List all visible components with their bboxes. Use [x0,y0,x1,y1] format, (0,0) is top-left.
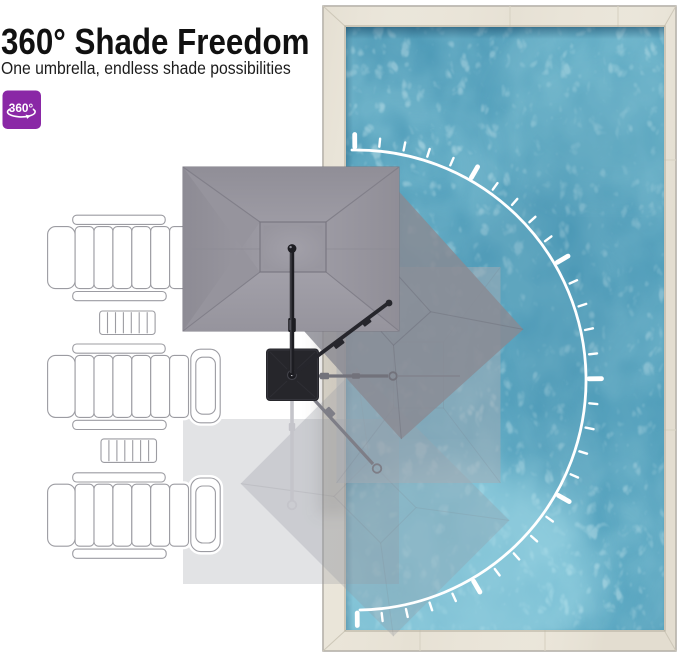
svg-text:360°: 360° [9,101,34,115]
